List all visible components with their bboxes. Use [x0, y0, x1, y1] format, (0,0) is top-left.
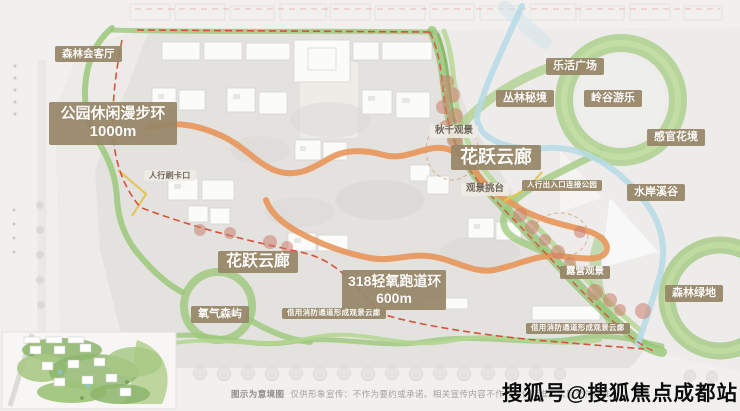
label-forest-greenland: 森林绿地	[665, 285, 723, 302]
label-pedestrian-entrance-park: 人行出入口连接公园	[522, 180, 602, 191]
label-waterfront-valley: 水岸溪谷	[627, 184, 685, 201]
label-oxygen-forest-isle: 氧气森屿	[191, 306, 249, 323]
label-pedestrian-gate: 人行刷卡口	[144, 170, 196, 181]
inset-key-plan	[2, 332, 176, 409]
label-swing-viewing: 秋千观景	[430, 125, 478, 138]
sohu-watermark: 搜狐号@搜狐焦点成都站	[502, 376, 738, 406]
label-park-walk-loop: 公园休闲漫步环 1000m	[49, 102, 177, 145]
label-flower-cloud-corridor-bottom: 花跃云廊	[218, 251, 298, 273]
label-viewing-deck: 观景挑台	[461, 183, 509, 196]
label-forest-lounge: 森林会客厅	[55, 46, 122, 62]
label-park-walk-loop-line2: 1000m	[55, 123, 171, 141]
label-ridge-valley-play: 岭谷游乐	[584, 90, 642, 107]
label-fire-lane-note-1: 借用消防通道形成观景云廊	[282, 308, 386, 319]
label-park-walk-loop-line1: 公园休闲漫步环	[55, 105, 171, 123]
label-oxygen-track-line1: 318轻氧跑道环	[348, 273, 440, 290]
label-flower-cloud-corridor-right: 花跃云廊	[451, 145, 541, 170]
label-sensory-garden: 感官花境	[647, 129, 705, 146]
label-oxygen-track: 318轻氧跑道环 600m	[342, 270, 446, 310]
label-camping-viewing: 露营观景	[560, 266, 610, 279]
disclaimer-intro: 图示为意境图	[231, 389, 284, 399]
site-plan-screenshot: 森林会客厅 公园休闲漫步环 1000m 人行刷卡口 秋千观景 花跃云廊 观景挑台…	[0, 0, 740, 411]
label-oxygen-track-line2: 600m	[348, 290, 440, 307]
label-fire-lane-note-2: 借用消防通道形成观景云廊	[526, 323, 630, 334]
label-lohas-plaza: 乐活广场	[546, 58, 604, 75]
label-jungle-secret: 丛林秘境	[496, 90, 554, 107]
